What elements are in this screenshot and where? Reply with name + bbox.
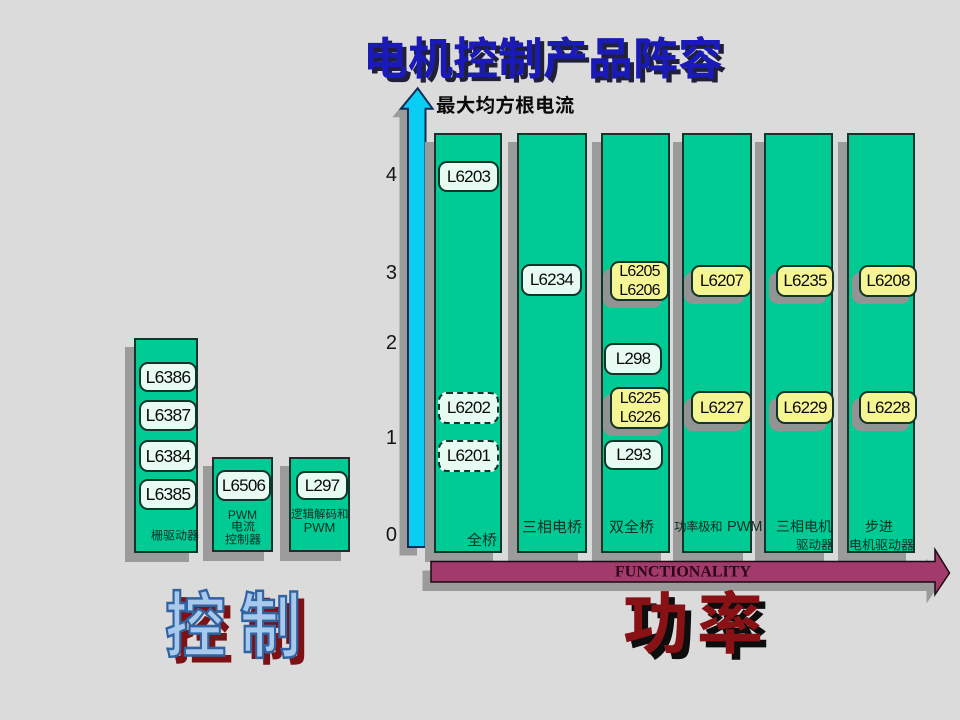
svg-text:FUNCTIONALITY: FUNCTIONALITY bbox=[615, 564, 751, 581]
